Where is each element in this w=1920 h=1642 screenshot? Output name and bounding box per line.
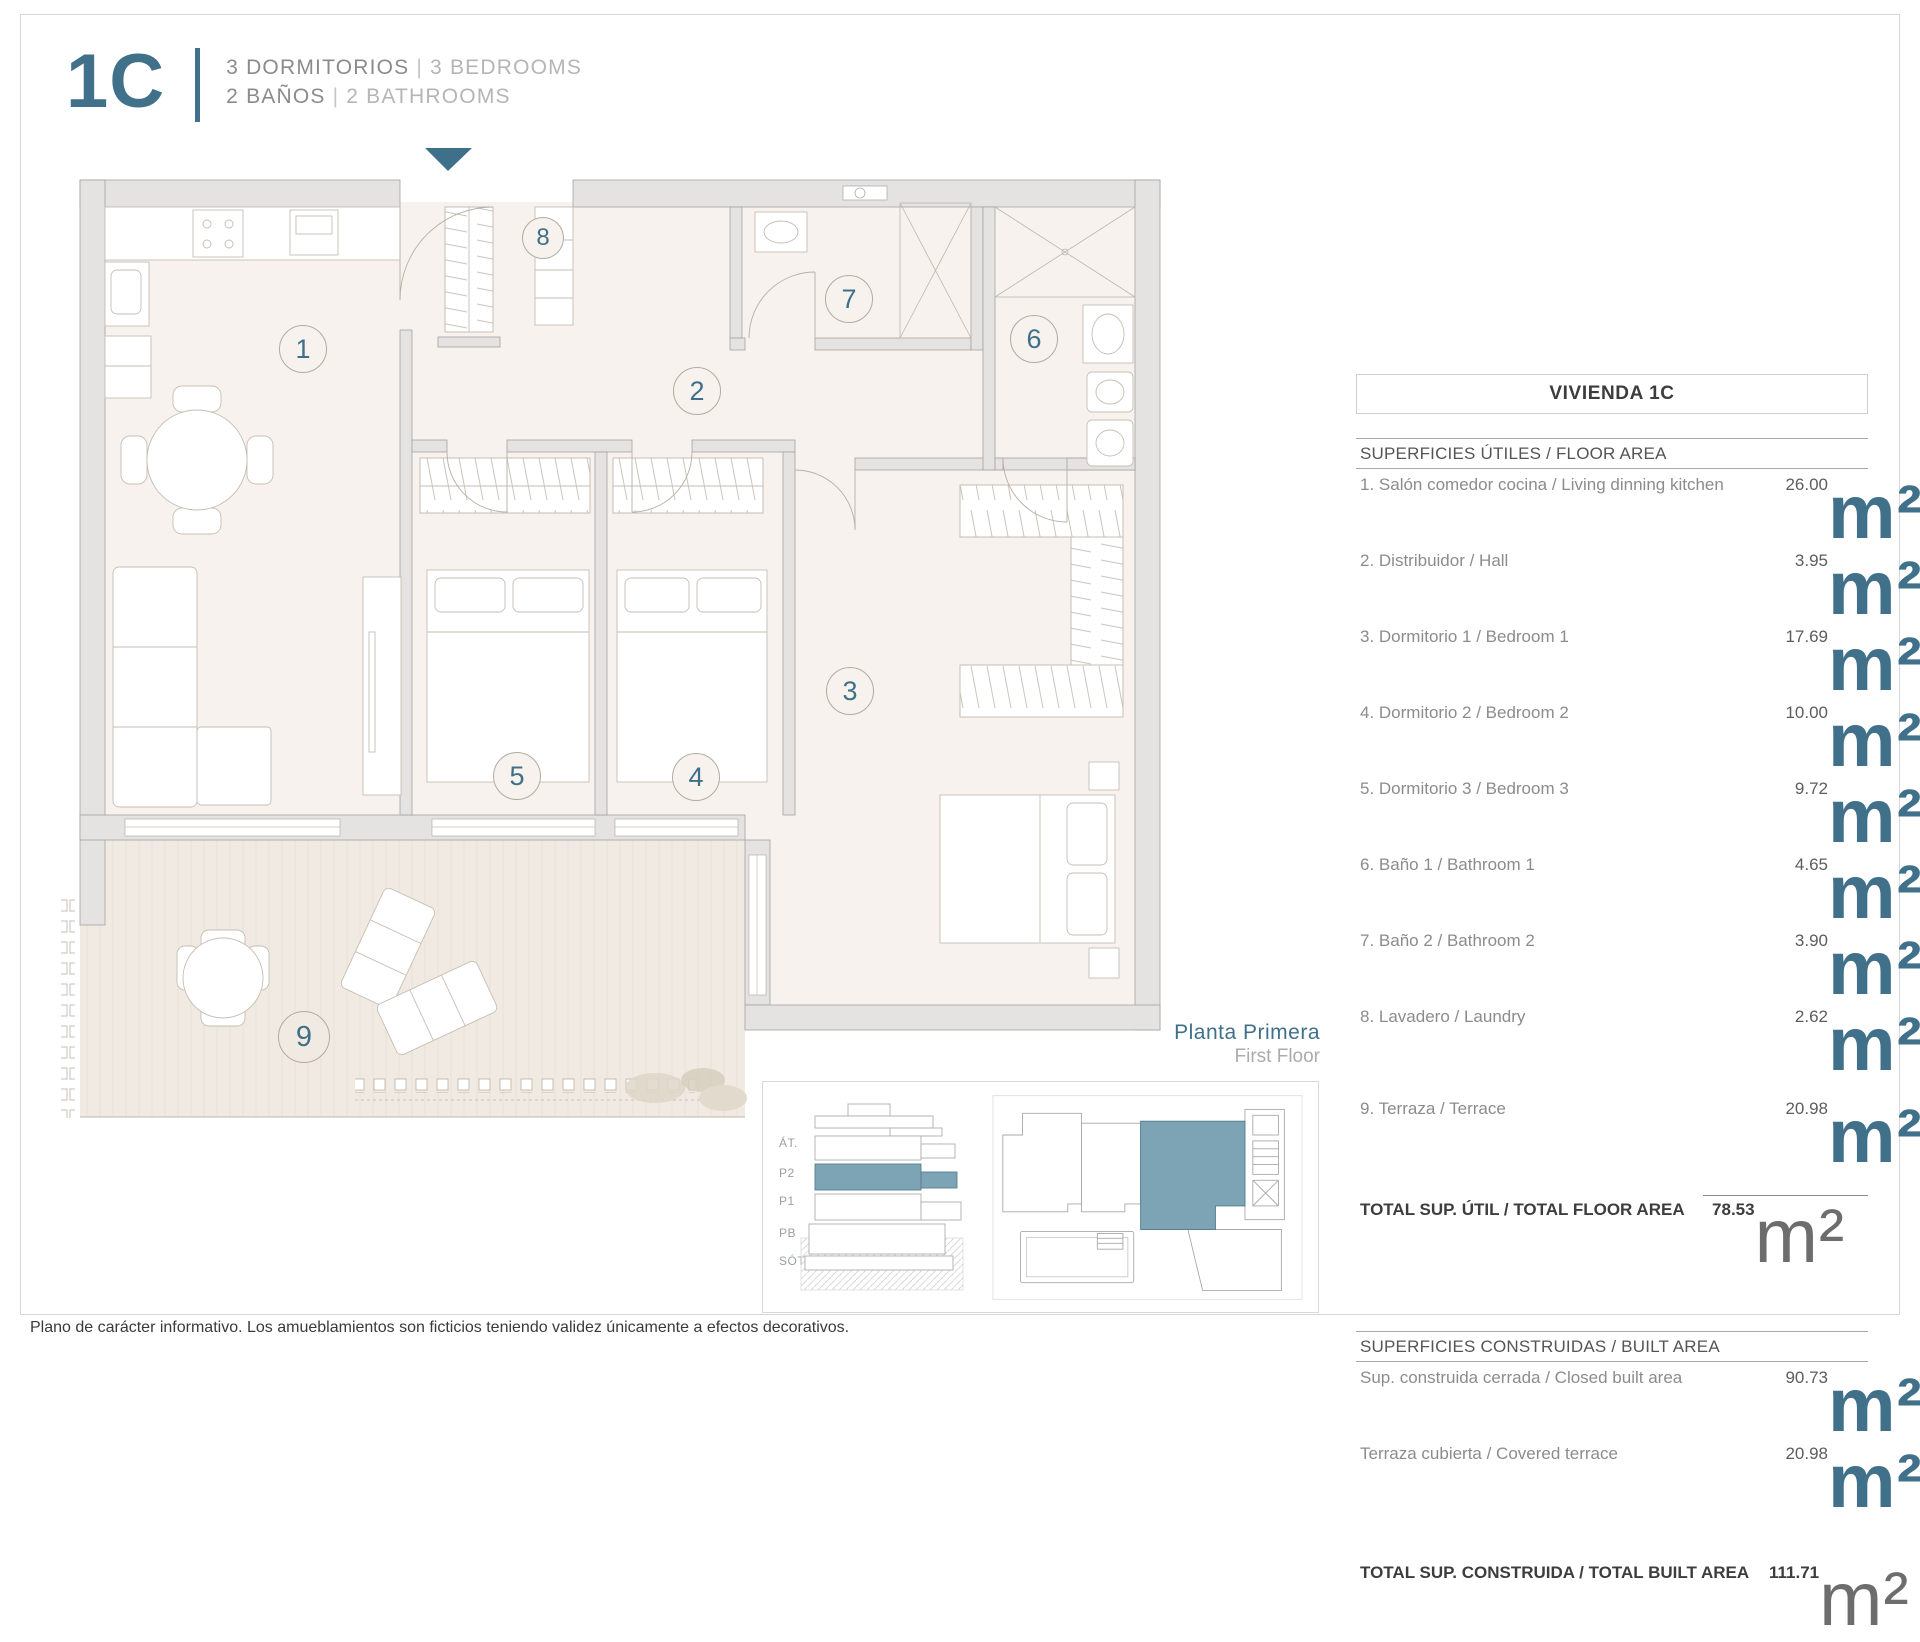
floor-area-heading: SUPERFICIES ÚTILES / FLOOR AREA	[1356, 439, 1868, 469]
subtitle-en: 3 BEDROOMS	[430, 56, 582, 79]
entrance-arrow-glyph	[425, 148, 472, 171]
room-number: 3	[842, 676, 857, 707]
table-row: 5. Dormitorio 3 / Bedroom 39.72m²	[1356, 779, 1868, 855]
room-badge-bedroom-3: 5	[493, 752, 541, 800]
row-unit: m²	[1828, 627, 1868, 703]
total-value: 111.71	[1749, 1562, 1819, 1638]
row-value: 26.00	[1758, 475, 1828, 551]
unit-id: 1C	[66, 44, 165, 120]
table-row: 1. Salón comedor cocina / Living dinning…	[1356, 475, 1868, 551]
room-badge-living: 1	[279, 325, 327, 373]
built-area-heading: SUPERFICIES CONSTRUIDAS / BUILT AREA	[1356, 1332, 1868, 1362]
row-value: 3.90	[1758, 931, 1828, 1007]
disclaimer: Plano de carácter informativo. Los amueb…	[30, 1319, 849, 1337]
floor-area-total: TOTAL SUP. ÚTIL / TOTAL FLOOR AREA78.53m…	[1356, 1199, 1868, 1275]
floor-label: Planta Primera First Floor	[1000, 1020, 1320, 1068]
title-subtitle: 3 DORMITORIOS|3 BEDROOMS 2 BAÑOS|2 BATHR…	[226, 53, 582, 111]
row-label: 2. Distribuidor / Hall	[1360, 551, 1758, 627]
row-unit: m²	[1828, 1444, 1868, 1520]
row-label: 7. Baño 2 / Bathroom 2	[1360, 931, 1758, 1007]
table-row: 6. Baño 1 / Bathroom 14.65m²	[1356, 855, 1868, 931]
terrace-railing	[61, 892, 75, 1118]
subtitle-es: 3 DORMITORIOS	[226, 56, 409, 79]
built-area-rows: Sup. construida cerrada / Closed built a…	[1356, 1362, 1868, 1520]
room-number: 7	[841, 284, 856, 315]
location-key: ÁT. P2 P1 PB SÓT.	[762, 1081, 1319, 1313]
room-number: 4	[688, 762, 703, 793]
room-number: 9	[296, 1021, 312, 1054]
room-badge-bathroom-1: 6	[1010, 315, 1058, 363]
subtitle-line-1: 3 DORMITORIOS|3 BEDROOMS	[226, 53, 582, 82]
table-row-terrace: 9. Terraza / Terrace20.98m²	[1356, 1099, 1868, 1175]
highlighted-floor-p1	[815, 1164, 957, 1190]
row-unit: m²	[1828, 703, 1868, 779]
floor-area-section: SUPERFICIES ÚTILES / FLOOR AREA 1. Salón…	[1356, 438, 1868, 1275]
areas-title: VIVIENDA 1C	[1356, 374, 1868, 414]
row-label: 1. Salón comedor cocina / Living dinning…	[1360, 475, 1758, 551]
room-number: 2	[689, 376, 704, 407]
total-label: TOTAL SUP. CONSTRUIDA / TOTAL BUILT AREA	[1360, 1562, 1749, 1638]
row-label: 4. Dormitorio 2 / Bedroom 2	[1360, 703, 1758, 779]
subtitle-en: 2 BATHROOMS	[346, 85, 511, 108]
room-number: 1	[295, 334, 310, 365]
room-badge-bedroom-1: 3	[826, 667, 874, 715]
row-value: 2.62	[1758, 1007, 1828, 1083]
total-unit: m²	[1819, 1562, 1859, 1638]
row-label: Sup. construida cerrada / Closed built a…	[1360, 1368, 1758, 1444]
title-block: 1C 3 DORMITORIOS|3 BEDROOMS 2 BAÑOS|2 BA…	[66, 44, 582, 122]
room-badge-laundry: 8	[522, 217, 564, 259]
table-row: 4. Dormitorio 2 / Bedroom 210.00m²	[1356, 703, 1868, 779]
table-row: 2. Distribuidor / Hall3.95m²	[1356, 551, 1868, 627]
row-label: 6. Baño 1 / Bathroom 1	[1360, 855, 1758, 931]
table-row: 8. Lavadero / Laundry2.62m²	[1356, 1007, 1868, 1083]
row-value: 90.73	[1758, 1368, 1828, 1444]
row-label: 8. Lavadero / Laundry	[1360, 1007, 1758, 1083]
areas-table: VIVIENDA 1C SUPERFICIES ÚTILES / FLOOR A…	[1356, 374, 1868, 1638]
total-label: TOTAL SUP. ÚTIL / TOTAL FLOOR AREA	[1360, 1199, 1685, 1275]
subtitle-separator: |	[333, 85, 340, 108]
floor-label-es: Planta Primera	[1000, 1020, 1320, 1045]
subtitle-es: 2 BAÑOS	[226, 85, 325, 108]
built-area-section: SUPERFICIES CONSTRUIDAS / BUILT AREA Sup…	[1356, 1331, 1868, 1638]
row-unit: m²	[1828, 931, 1868, 1007]
room-number: 5	[509, 761, 524, 792]
room-badge-bedroom-2: 4	[672, 753, 720, 801]
row-value: 4.65	[1758, 855, 1828, 931]
room-number: 6	[1026, 324, 1041, 355]
total-value: 78.53	[1685, 1199, 1755, 1275]
row-value: 20.98	[1758, 1099, 1828, 1175]
row-unit: m²	[1828, 1368, 1868, 1444]
row-value: 17.69	[1758, 627, 1828, 703]
title-divider	[195, 48, 200, 122]
row-unit: m²	[1828, 551, 1868, 627]
row-value: 10.00	[1758, 703, 1828, 779]
floor-label-en: First Floor	[1000, 1045, 1320, 1068]
highlighted-unit-1c	[1141, 1121, 1245, 1229]
row-unit: m²	[1828, 855, 1868, 931]
room-number: 8	[536, 224, 549, 252]
table-row: Terraza cubierta / Covered terrace20.98m…	[1356, 1444, 1868, 1520]
row-label: 9. Terraza / Terrace	[1360, 1099, 1758, 1175]
row-unit: m²	[1828, 1007, 1868, 1083]
row-value: 3.95	[1758, 551, 1828, 627]
building-section-diagram	[793, 1098, 973, 1298]
floor-plan-drawing	[55, 140, 1165, 1160]
row-unit: m²	[1828, 779, 1868, 855]
subtitle-separator: |	[416, 56, 423, 79]
built-area-total: TOTAL SUP. CONSTRUIDA / TOTAL BUILT AREA…	[1356, 1562, 1868, 1638]
row-unit: m²	[1828, 475, 1868, 551]
row-label: 5. Dormitorio 3 / Bedroom 3	[1360, 779, 1758, 855]
floor-area-rows: 1. Salón comedor cocina / Living dinning…	[1356, 469, 1868, 1175]
row-label: 3. Dormitorio 1 / Bedroom 1	[1360, 627, 1758, 703]
total-unit: m²	[1755, 1199, 1795, 1275]
floor-plan: 1 2 3 4 5 6 7 8 9	[55, 140, 1165, 1160]
subtitle-line-2: 2 BAÑOS|2 BATHROOMS	[226, 82, 582, 111]
room-badge-terrace: 9	[278, 1011, 330, 1063]
row-unit: m²	[1828, 1099, 1868, 1175]
table-row: 7. Baño 2 / Bathroom 23.90m²	[1356, 931, 1868, 1007]
row-value: 9.72	[1758, 779, 1828, 855]
room-badge-hall: 2	[673, 367, 721, 415]
table-row: 3. Dormitorio 1 / Bedroom 117.69m²	[1356, 627, 1868, 703]
row-label: Terraza cubierta / Covered terrace	[1360, 1444, 1758, 1520]
row-value: 20.98	[1758, 1444, 1828, 1520]
building-key-plan	[991, 1092, 1306, 1304]
table-row: Sup. construida cerrada / Closed built a…	[1356, 1368, 1868, 1444]
room-badge-bathroom-2: 7	[825, 275, 873, 323]
